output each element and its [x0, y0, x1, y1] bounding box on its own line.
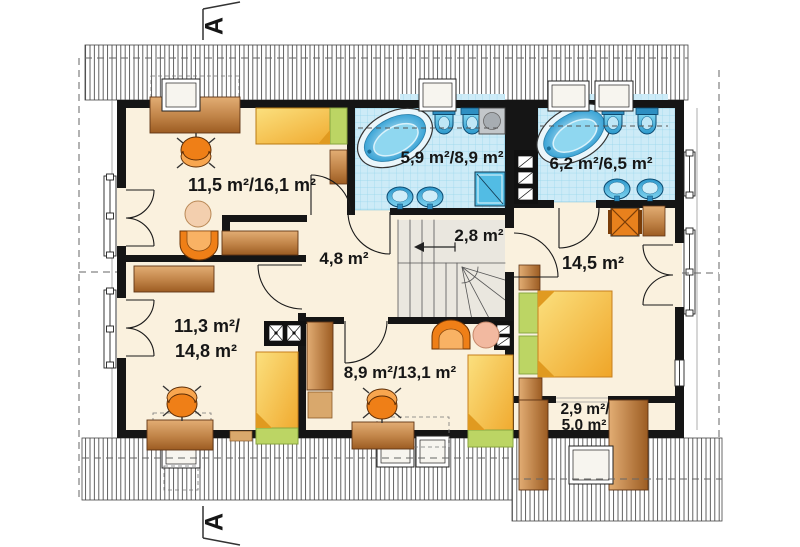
bidet-right — [636, 108, 658, 134]
section-letter-bottom: A — [201, 513, 229, 531]
single-bed-bottom-middle — [468, 355, 513, 447]
cabinet-right-bedroom — [643, 206, 665, 236]
label-room-bottom-left-2: 14,8 m² — [175, 341, 237, 361]
desk-bottom-left — [147, 420, 213, 450]
window-right-1 — [684, 150, 695, 198]
section-letter-top: A — [201, 17, 229, 35]
sideboard-top-left — [222, 231, 298, 255]
label-room-bottom-middle: 8,9 m²/13,1 m² — [344, 363, 457, 382]
label-stair: 2,8 m² — [454, 226, 503, 245]
shower — [475, 172, 505, 206]
chimney-shaft-bathrooms — [514, 150, 538, 204]
round-table-bottom-middle — [473, 322, 499, 348]
window-left-1 — [104, 174, 116, 258]
label-room-bottom-left-1: 11,3 m²/ — [174, 316, 240, 336]
washing-machine — [479, 108, 505, 134]
label-bath-right: 6,2 m²/6,5 m² — [550, 154, 653, 173]
section-marker-bottom: A — [201, 506, 240, 545]
label-storage-2: 5,0 m² — [562, 417, 607, 434]
window-right-2 — [684, 228, 695, 316]
window-left-2 — [104, 288, 116, 368]
floor-plan-page: 11,5 m²/16,1 m² 5,9 m²/8,9 m² 6,2 m²/6,5… — [0, 0, 800, 547]
round-table-top-left — [185, 201, 211, 227]
nightstand-right-2 — [519, 378, 542, 401]
label-storage-1: 2,9 m²/ — [560, 401, 610, 418]
toilet-right — [602, 108, 624, 134]
armchair-top-left — [180, 231, 218, 260]
armchair-bottom-middle — [432, 320, 470, 349]
label-hall: 4,8 m² — [319, 249, 368, 268]
label-room-top-left: 11,5 m²/16,1 m² — [188, 175, 316, 195]
section-marker-top: A — [201, 2, 240, 40]
wardrobe-storage-1 — [519, 400, 548, 490]
stool-bottom-left — [230, 431, 252, 441]
label-bedroom-right: 14,5 m² — [562, 253, 624, 273]
toilet-left — [433, 108, 455, 134]
bed-top-left — [256, 108, 347, 144]
label-bath-left: 5,9 m²/8,9 m² — [401, 148, 504, 167]
single-bed-bottom-left — [256, 352, 298, 444]
wardrobe-storage-2 — [609, 400, 648, 490]
window-right-3 — [675, 360, 684, 386]
desk-bottom-middle — [352, 422, 414, 449]
chair-right-bedroom — [608, 208, 642, 236]
floor-plan: 11,5 m²/16,1 m² 5,9 m²/8,9 m² 6,2 m²/6,5… — [0, 0, 800, 547]
nightstand-top-left — [330, 150, 347, 184]
skylight-bottom-right — [569, 446, 613, 484]
chimney-shaft-middle — [264, 321, 306, 346]
wardrobe-bottom-middle — [307, 322, 333, 390]
shelf-bottom-left — [134, 266, 214, 292]
cabinet-bottom-middle — [308, 392, 332, 418]
